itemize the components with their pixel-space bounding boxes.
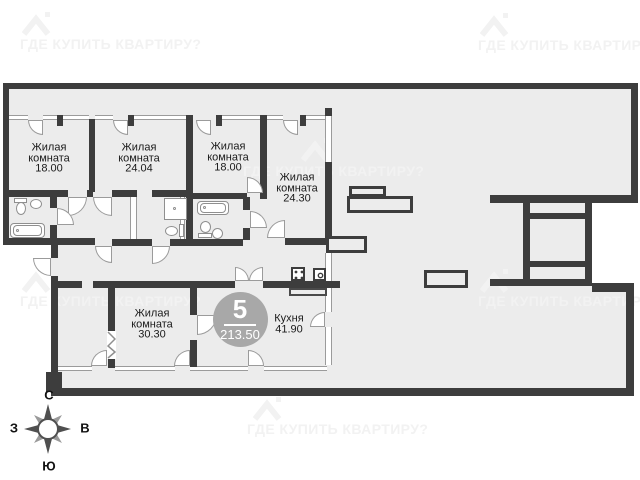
watermark-text: ГДЕ КУПИТЬ КВАРТИРУ? [247, 421, 428, 437]
watermark-text: ГДЕ КУПИТЬ КВАРТИРУ? [243, 163, 424, 179]
wall [50, 197, 57, 208]
wall [57, 115, 63, 126]
wall [51, 388, 634, 396]
stove-icon [291, 267, 305, 281]
room-label: Жилаякомната24.04 [118, 142, 160, 174]
wall [490, 195, 638, 203]
compass-north-label: С [44, 388, 53, 403]
wall [626, 286, 634, 396]
watermark-text: ГДЕ КУПИТЬ КВАРТИРУ? [478, 293, 640, 309]
fixture-basin [165, 226, 178, 236]
window [43, 115, 57, 120]
window [264, 366, 327, 371]
wall [3, 83, 638, 89]
kitchen-sink-icon [313, 268, 326, 281]
wall [243, 197, 250, 210]
wall [523, 203, 530, 285]
compass-east-label: В [80, 421, 89, 436]
compass-west-label: З [10, 421, 18, 436]
watermark-house-icon [253, 395, 283, 421]
wall [243, 228, 250, 240]
kitchen-counter [289, 288, 327, 296]
apartment-badge: 5 213.50 [213, 292, 268, 347]
fixture-basin [30, 199, 42, 209]
window [133, 115, 186, 120]
wall [193, 193, 247, 199]
total-area: 213.50 [213, 328, 268, 341]
badge-divider [224, 324, 256, 326]
wall [190, 288, 197, 315]
watermark-text: ГДЕ КУПИТЬ КВАРТИРУ? [20, 36, 201, 52]
wall [263, 281, 340, 288]
wall [530, 261, 585, 267]
wall [51, 276, 58, 372]
fixture-basin [16, 202, 26, 215]
floorplan-page: ГДЕ КУПИТЬ КВАРТИРУ?ГДЕ КУПИТЬ КВАРТИРУ?… [0, 0, 640, 480]
window [325, 114, 332, 162]
room-label: Жилаякомната18.00 [28, 142, 70, 174]
window [115, 366, 175, 371]
wall [51, 245, 58, 258]
wall [631, 83, 638, 203]
wall [490, 279, 592, 286]
window [9, 115, 28, 120]
wall [3, 190, 68, 197]
window [325, 327, 332, 365]
wall [50, 225, 57, 238]
wall [325, 162, 332, 238]
wall [108, 288, 115, 332]
wall [216, 115, 222, 126]
counter-block [347, 196, 413, 213]
fixture [179, 224, 184, 237]
wall [87, 190, 93, 197]
watermark-text: ГДЕ КУПИТЬ КВАРТИРУ? [478, 37, 640, 53]
wall [186, 115, 193, 239]
window [190, 366, 248, 371]
wall [325, 108, 332, 116]
counter-block [424, 270, 468, 288]
window [306, 115, 325, 120]
fixture-drain [203, 206, 206, 209]
wall [190, 340, 197, 367]
window [95, 115, 113, 120]
rooms-count: 5 [213, 296, 268, 322]
wall [152, 190, 193, 197]
wall [93, 281, 235, 288]
window [58, 366, 92, 371]
wall [585, 203, 592, 285]
wall [112, 239, 152, 246]
wall [170, 239, 243, 246]
fixture-basin [212, 228, 223, 239]
wall [89, 119, 95, 192]
wall [112, 190, 137, 197]
wall [300, 115, 306, 126]
wall [530, 213, 585, 219]
fixture-basin [200, 221, 211, 233]
watermark-house-icon [480, 11, 510, 37]
watermark-house-icon [22, 10, 52, 36]
wall [260, 115, 267, 192]
fixture-drain [173, 207, 176, 210]
window [63, 115, 89, 120]
counter-block [326, 236, 367, 253]
room-label: Жилаякомната18.00 [207, 141, 249, 173]
accordion-door [107, 331, 116, 359]
window [267, 115, 283, 120]
room-label: Жилаякомната24.30 [276, 172, 318, 204]
room-label: Кухня41.90 [274, 314, 303, 335]
window [222, 115, 260, 120]
room-label: Жилаякомната30.30 [131, 308, 173, 340]
wall [128, 115, 134, 126]
exterior-void [592, 203, 638, 283]
fixture-drain [16, 229, 19, 232]
wall [108, 358, 115, 368]
compass-south-label: Ю [42, 459, 55, 474]
wall [3, 83, 9, 245]
wall [592, 283, 634, 292]
window [130, 197, 137, 239]
wall [58, 281, 82, 288]
wall [3, 238, 95, 245]
fixture [198, 233, 212, 238]
wall [285, 238, 332, 245]
